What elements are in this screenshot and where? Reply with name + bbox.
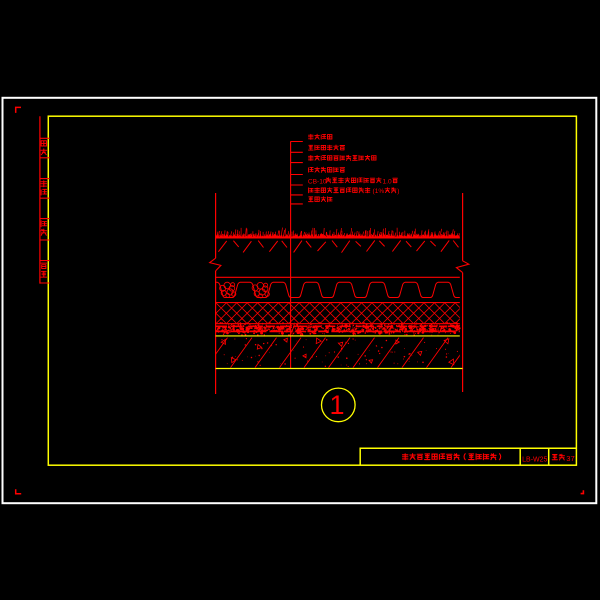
svg-text:CB-10: CB-10	[308, 178, 327, 185]
svg-text:LB-W25: LB-W25	[522, 456, 547, 463]
svg-text:1: 1	[329, 390, 344, 420]
svg-text:(1%: (1%	[373, 188, 385, 195]
svg-text:1.0: 1.0	[383, 178, 392, 185]
svg-text:): )	[397, 188, 399, 195]
svg-text:37: 37	[566, 454, 574, 463]
